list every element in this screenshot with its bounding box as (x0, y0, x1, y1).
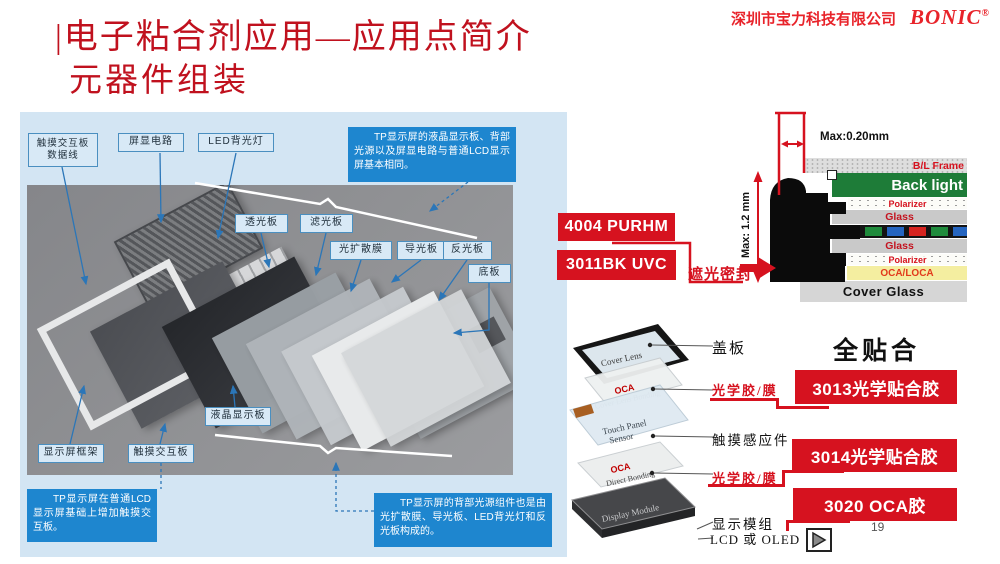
slide: 深圳市宝力科技有限公司 BONIC® |电子粘合剂应用—应用点简介 元器件组装 (0, 0, 1000, 564)
rgb-cell-green (931, 227, 948, 236)
layer-cover-glass: Cover Glass (800, 281, 967, 302)
label-data-cable: 触摸交互板 数据线 (28, 133, 98, 167)
backlight-notch (827, 170, 837, 180)
layer-glass-bottom-label: Glass (885, 240, 914, 252)
exploded-photo-panel: 触摸交互板 数据线 屏显电路 LED背光灯 透光板 滤光板 光扩散膜 导光板 反… (20, 112, 567, 557)
layer-polarizer-top: Polarizer (848, 198, 967, 209)
play-icon (808, 530, 830, 550)
layer-oca-loca: OCA/LOCA (847, 266, 967, 280)
layer-oca-label: OCA/LOCA (880, 268, 933, 279)
label-touch-panel: 触摸交互板 (128, 444, 194, 463)
layer-bl-frame-label: B/L Frame (913, 160, 967, 172)
label-diffuser: 光扩散膜 (330, 241, 392, 260)
callout-bottom-left: TP显示屏在普通LCD显示屏基础上增加触摸交互板。 (27, 489, 157, 542)
label-lcd-or-oled: LCD 或 OLED (710, 529, 800, 548)
connector-optical2-v (782, 472, 785, 486)
next-slide-button[interactable] (806, 528, 832, 552)
layer-polarizer-bottom-label: Polarizer (885, 255, 929, 265)
layer-polarizer-top-label: Polarizer (885, 199, 929, 209)
connector-optical2-a (708, 484, 785, 487)
full-lamination-heading: 全贴合 (833, 331, 920, 367)
page-number: 19 (871, 520, 884, 534)
label-light-trans: 透光板 (235, 214, 288, 233)
product-3013-label: 3013光学贴合胶 (812, 375, 939, 400)
rgb-cell-red (909, 227, 926, 236)
layer-backlight-label: Back light (891, 177, 967, 194)
registered-mark: ® (982, 8, 990, 19)
label-display-frame: 显示屏框架 (38, 444, 104, 463)
layer-polarizer-bottom: Polarizer (848, 254, 967, 265)
dim-side-label: Max: 1.2 mm (740, 180, 754, 270)
product-3020-label: 3020 OCA胶 (824, 492, 926, 517)
layer-glass-bottom: Glass (832, 239, 967, 253)
layer-backlight: Back light (832, 173, 967, 197)
lamination-exploded-diagram: Cover Lens OCA Cover Lens Bonding Touch … (565, 315, 715, 560)
callout-top-text: TP显示屏的液晶显示板、背部光源以及屏显电路与普通LCD显示屏基本相同。 (354, 131, 510, 173)
label-optical1: 光学胶/膜 (712, 380, 778, 399)
label-base-plate: 底板 (468, 264, 511, 283)
product-box-3020: 3020 OCA胶 (793, 488, 957, 521)
product-box-4004: 4004 PURHM (558, 213, 675, 241)
callout-bottom-right-text: TP显示屏的背部光源组件也是由光扩散膜、导光板、LED背光灯和反光板构成的。 (380, 497, 546, 539)
layer-cover-glass-label: Cover Glass (843, 284, 924, 299)
label-light-filter: 滤光板 (300, 214, 353, 233)
product-box-3011: 3011BK UVC (557, 250, 676, 280)
product-box-3013: 3013光学贴合胶 (795, 370, 957, 404)
title-line1: |电子粘合剂应用—应用点简介 (55, 16, 532, 60)
layer-rgb-cells (860, 225, 967, 238)
dim-top-label: Max:0.20mm (820, 131, 889, 143)
brand-bar: 深圳市宝力科技有限公司 BONIC® (731, 5, 990, 30)
label-light-guide: 导光板 (397, 241, 446, 260)
product-box-3014: 3014光学贴合胶 (792, 439, 957, 472)
rgb-cell-green (865, 227, 882, 236)
product-3011-label: 3011BK UVC (566, 256, 667, 274)
connector-optical1-b (776, 406, 829, 409)
label-led-backlight: LED背光灯 (198, 133, 274, 152)
connector-optical1-a (710, 398, 778, 401)
title-line2: 元器件组装 (55, 60, 532, 102)
layer-glass-top-label: Glass (885, 211, 914, 223)
brand-logo: BONIC® (910, 5, 990, 30)
rgb-cell-blue (953, 227, 967, 236)
label-touch-sensor: 触摸感应件 (712, 429, 790, 449)
label-lcd-panel: 液晶显示板 (205, 407, 271, 426)
callout-bottom-right: TP显示屏的背部光源组件也是由光扩散膜、导光板、LED背光灯和反光板构成的。 (374, 493, 552, 547)
rgb-cell-blue (887, 227, 904, 236)
connector-3020-v (786, 520, 789, 531)
callout-bottom-left-text: TP显示屏在普通LCD显示屏基础上增加触摸交互板。 (33, 493, 151, 535)
layer-glass-top: Glass (832, 210, 967, 224)
label-cover: 盖板 (712, 337, 746, 358)
label-screen-circuit: 屏显电路 (118, 133, 184, 152)
page-title: |电子粘合剂应用—应用点简介 元器件组装 (55, 16, 532, 102)
product-3014-label: 3014光学贴合胶 (811, 443, 938, 468)
product-4004-label: 4004 PURHM (565, 218, 669, 236)
callout-top: TP显示屏的液晶显示板、背部光源以及屏显电路与普通LCD显示屏基本相同。 (348, 127, 516, 182)
label-reflector: 反光板 (443, 241, 492, 260)
company-name: 深圳市宝力科技有限公司 (731, 8, 896, 29)
